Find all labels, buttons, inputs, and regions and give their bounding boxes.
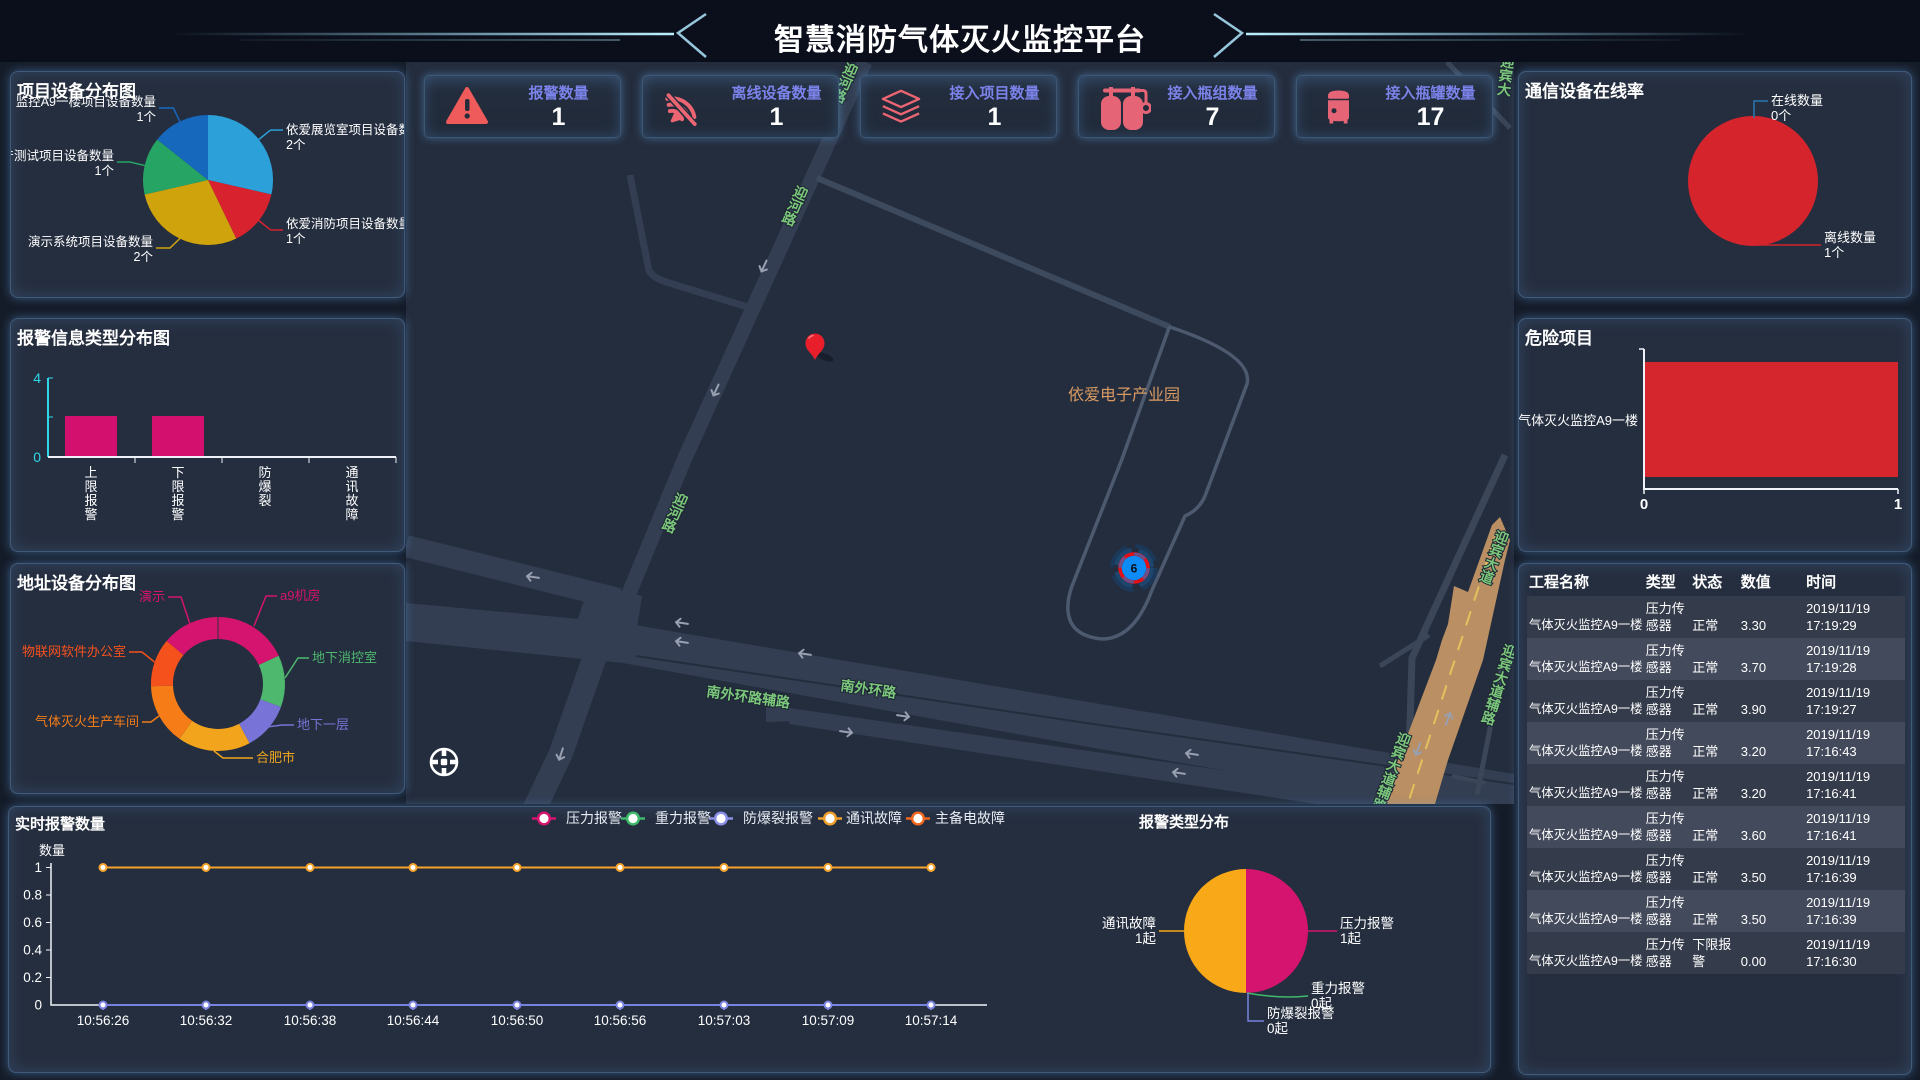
svg-text:主备电故障: 主备电故障 [935,810,1005,826]
svg-text:1个: 1个 [95,164,115,178]
svg-text:下限报警: 下限报警 [171,465,184,522]
svg-text:气体灭火生产车间: 气体灭火生产车间 [35,714,139,729]
svg-text:监控A9一楼项目设备数量: 监控A9一楼项目设备数量 [16,94,156,109]
svg-text:0.2: 0.2 [23,970,42,985]
svg-text:1: 1 [34,860,42,875]
svg-text:在线数量: 在线数量 [1771,93,1823,108]
svg-text:0.4: 0.4 [23,943,42,958]
svg-text:0起: 0起 [1267,1021,1289,1036]
svg-text:0.8: 0.8 [23,888,42,903]
svg-text:防爆裂报警: 防爆裂报警 [1267,1006,1335,1021]
svg-text:防爆裂: 防爆裂 [258,465,271,508]
svg-text:依爱电子产业园: 依爱电子产业园 [1068,386,1180,404]
svg-text:地下消控室: 地下消控室 [312,650,377,665]
svg-text:6: 6 [1131,562,1138,576]
svg-text:10:56:56: 10:56:56 [594,1013,647,1028]
svg-text:通讯故障: 通讯故障 [846,810,902,826]
svg-text:依爱消防项目设备数量: 依爱消防项目设备数量 [286,216,404,231]
svg-text:上限报警: 上限报警 [84,465,97,522]
svg-text:1: 1 [1894,496,1902,513]
svg-text:报警类型分布: 报警类型分布 [1139,813,1229,831]
svg-text:1起: 1起 [1340,931,1362,946]
svg-text:0: 0 [34,998,42,1013]
svg-text:迎宾大道辅路: 迎宾大道辅路 [1480,642,1514,729]
svg-text:0: 0 [1640,496,1648,513]
svg-text:10:57:03: 10:57:03 [698,1013,751,1028]
svg-text:a9机房: a9机房 [280,588,320,603]
svg-text:压力报警: 压力报警 [1340,916,1394,931]
svg-text:重力报警: 重力报警 [655,810,711,826]
svg-text:物联网软件办公室: 物联网软件办公室 [22,644,126,659]
svg-text:10:56:44: 10:56:44 [387,1013,440,1028]
svg-text:1个: 1个 [286,232,306,246]
svg-text:0.6: 0.6 [23,915,42,930]
svg-text:数量: 数量 [39,843,65,858]
svg-text:2个: 2个 [286,138,306,152]
svg-text:依爱展览室项目设备数量: 依爱展览室项目设备数量 [286,122,404,137]
svg-text:10:56:50: 10:56:50 [491,1013,544,1028]
svg-text:1起: 1起 [1135,931,1157,946]
svg-text:防爆裂报警: 防爆裂报警 [743,810,813,826]
svg-text:1个: 1个 [137,110,157,124]
svg-text:10:56:32: 10:56:32 [180,1013,233,1028]
svg-text:演示系统项目设备数量: 演示系统项目设备数量 [28,234,153,249]
svg-text:4: 4 [33,370,41,386]
svg-text:1个: 1个 [1824,245,1844,260]
svg-text:迎宾大: 迎宾大 [1496,62,1514,98]
svg-text:2个: 2个 [134,250,154,264]
svg-text:0: 0 [33,449,41,465]
svg-text:合肥市: 合肥市 [256,750,295,765]
svg-text:10:57:09: 10:57:09 [802,1013,855,1028]
svg-text:气体灭火监控A9一楼: 气体灭火监控A9一楼 [1519,413,1638,428]
svg-text:离线数量: 离线数量 [1824,230,1876,245]
svg-text:压力报警: 压力报警 [566,810,622,826]
svg-text:0个: 0个 [1771,108,1791,123]
svg-text:地下一层: 地下一层 [297,717,349,732]
svg-text:演示: 演示 [139,589,165,604]
svg-text:10:56:26: 10:56:26 [77,1013,130,1028]
svg-text:重力报警: 重力报警 [1311,981,1365,996]
svg-text:10:57:14: 10:57:14 [905,1013,958,1028]
svg-text:生产测试项目设备数量: 生产测试项目设备数量 [11,148,114,163]
svg-text:通讯故障: 通讯故障 [345,465,358,522]
svg-text:通讯故障: 通讯故障 [1102,916,1156,931]
svg-text:10:56:38: 10:56:38 [284,1013,337,1028]
